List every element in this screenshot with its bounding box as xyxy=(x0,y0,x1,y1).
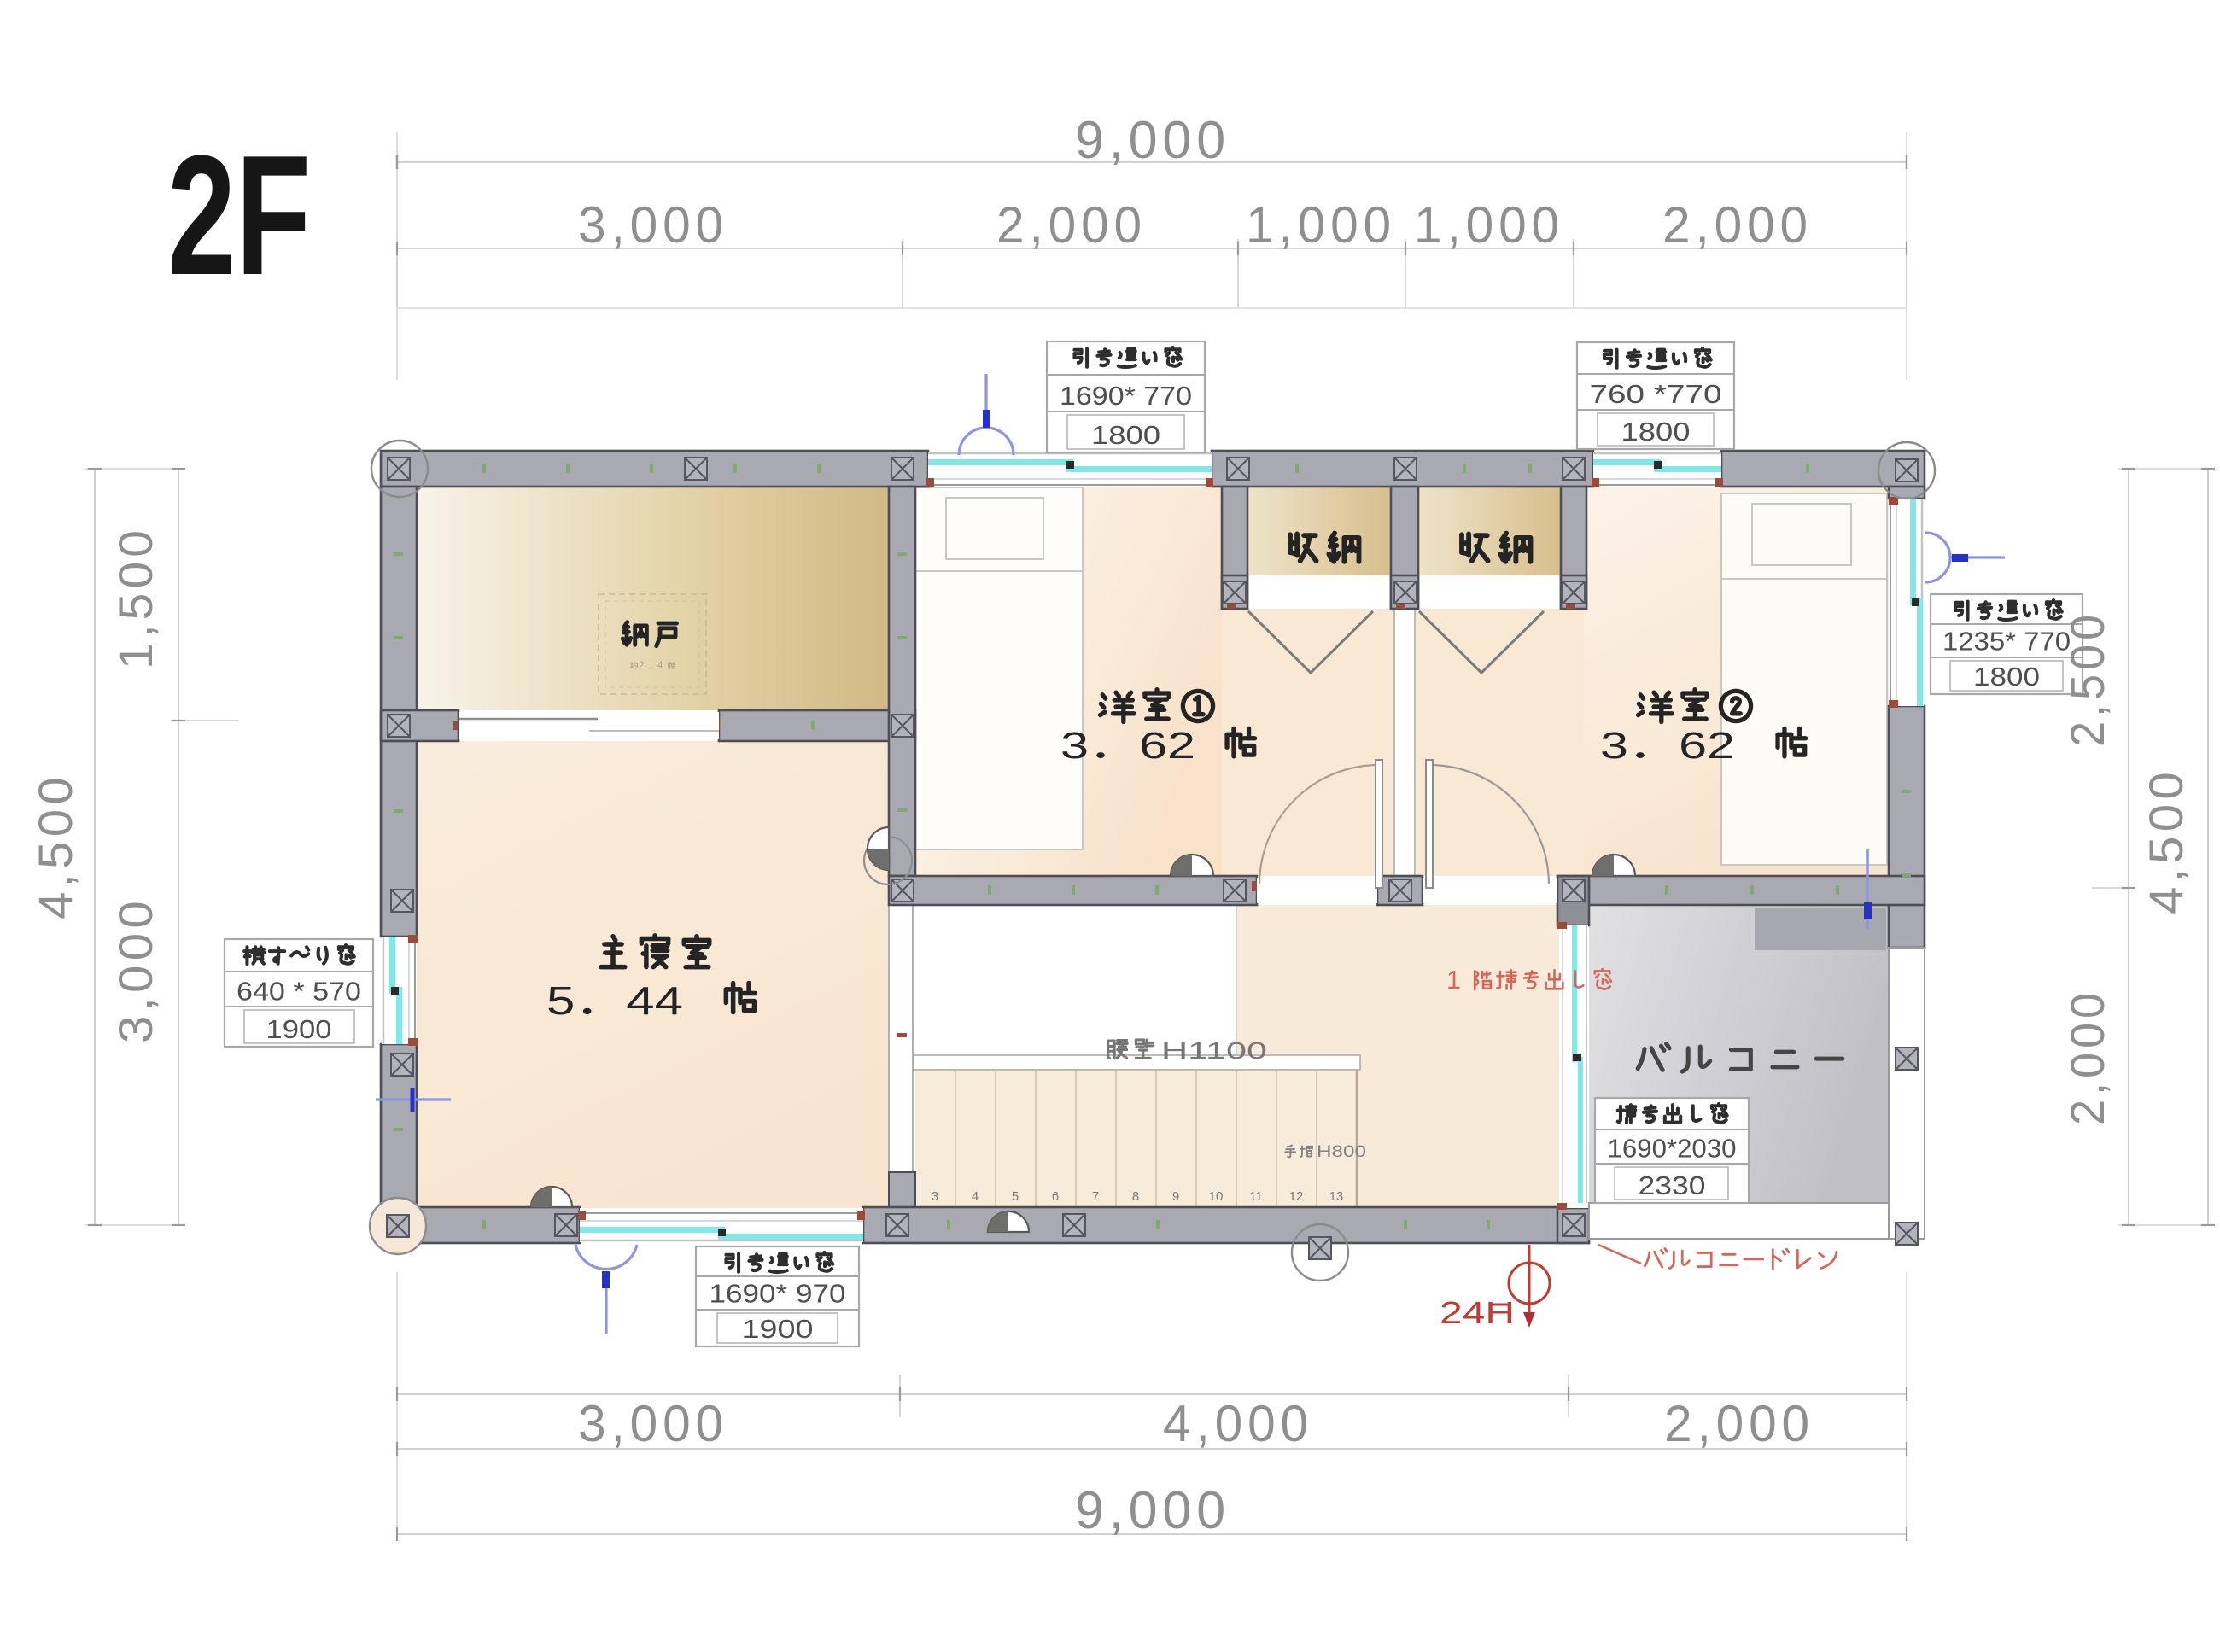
svg-text:9,000: 9,000 xyxy=(1075,1481,1230,1540)
svg-text:3: 3 xyxy=(932,1189,938,1204)
svg-text:3．62: 3．62 xyxy=(1060,725,1195,767)
svg-text:1690*2030: 1690*2030 xyxy=(1608,1134,1737,1164)
svg-text:1800: 1800 xyxy=(1973,662,2040,692)
svg-text:.: . xyxy=(648,660,651,671)
svg-text:4,500: 4,500 xyxy=(28,773,82,919)
svg-text:4: 4 xyxy=(657,660,663,671)
svg-text:2F: 2F xyxy=(167,120,311,311)
svg-text:4,500: 4,500 xyxy=(2139,768,2193,914)
svg-text:1900: 1900 xyxy=(266,1014,332,1044)
svg-text:6: 6 xyxy=(1052,1189,1059,1204)
svg-text:4: 4 xyxy=(972,1189,979,1204)
svg-text:11: 11 xyxy=(1249,1189,1263,1204)
svg-text:1235* 770: 1235* 770 xyxy=(1942,627,2071,657)
svg-text:2,000: 2,000 xyxy=(996,196,1147,254)
svg-text:2,000: 2,000 xyxy=(2060,989,2114,1125)
svg-text:1800: 1800 xyxy=(1621,417,1691,447)
svg-text:9,000: 9,000 xyxy=(1075,111,1230,170)
svg-text:1,000: 1,000 xyxy=(1414,196,1564,254)
svg-text:12: 12 xyxy=(1289,1189,1304,1204)
svg-text:H800: H800 xyxy=(1317,1143,1366,1161)
svg-text:3,000: 3,000 xyxy=(578,1395,728,1452)
svg-text:13: 13 xyxy=(1329,1189,1344,1204)
svg-text:H1100: H1100 xyxy=(1161,1037,1267,1064)
svg-text:5: 5 xyxy=(1012,1189,1019,1204)
svg-text:3,000: 3,000 xyxy=(108,896,162,1043)
svg-text:1690* 970: 1690* 970 xyxy=(710,1279,846,1309)
svg-text:1690* 770: 1690* 770 xyxy=(1060,381,1192,411)
svg-text:2: 2 xyxy=(639,660,644,671)
svg-text:2330: 2330 xyxy=(1639,1170,1706,1200)
svg-text:9: 9 xyxy=(1172,1189,1179,1204)
svg-text:2,000: 2,000 xyxy=(1662,196,1813,254)
svg-text:8: 8 xyxy=(1132,1189,1139,1204)
svg-text:7: 7 xyxy=(1092,1189,1099,1204)
svg-text:24H: 24H xyxy=(1440,1295,1515,1330)
svg-text:1,500: 1,500 xyxy=(108,526,162,669)
svg-text:2,000: 2,000 xyxy=(1664,1395,1814,1452)
svg-text:5．44: 5．44 xyxy=(546,978,683,1023)
svg-text:1,000: 1,000 xyxy=(1246,196,1396,254)
svg-text:4,000: 4,000 xyxy=(1163,1395,1313,1452)
svg-text:1900: 1900 xyxy=(742,1314,814,1344)
svg-text:2,500: 2,500 xyxy=(2060,610,2114,747)
svg-text:1: 1 xyxy=(1446,966,1461,995)
svg-text:1800: 1800 xyxy=(1091,420,1160,450)
svg-text:3．62: 3．62 xyxy=(1600,725,1735,767)
svg-text:3,000: 3,000 xyxy=(578,196,728,254)
svg-text:760 *770: 760 *770 xyxy=(1590,379,1722,409)
svg-text:640 * 570: 640 * 570 xyxy=(237,976,361,1006)
svg-text:10: 10 xyxy=(1209,1189,1224,1204)
